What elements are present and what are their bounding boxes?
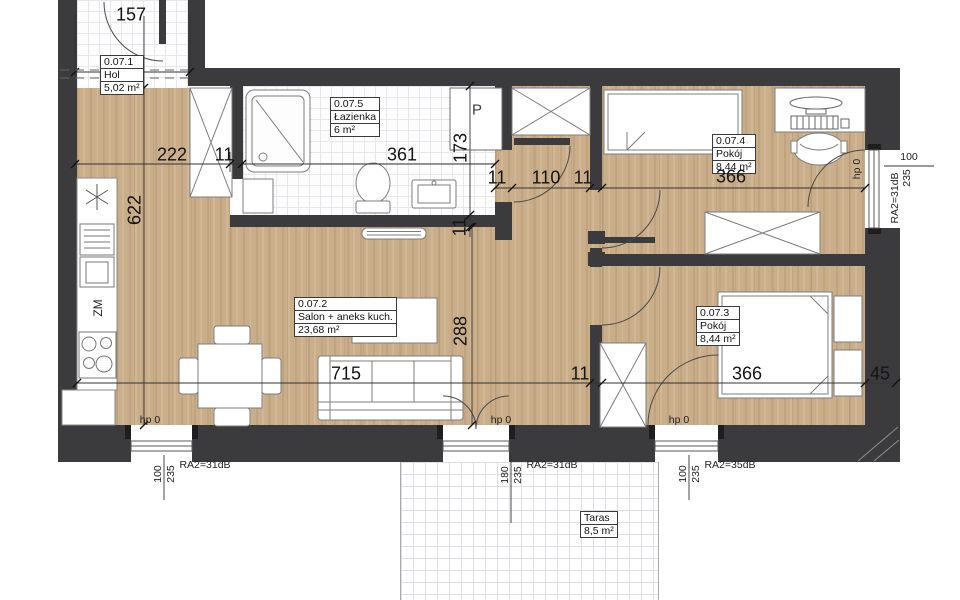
dim-11-bottom: 11 xyxy=(571,364,590,385)
door-bedroom4 xyxy=(602,190,660,248)
window-width-label: 100 xyxy=(677,465,689,483)
room-name: Salon + aneks kuch. xyxy=(295,310,396,323)
hob-icon xyxy=(79,332,116,378)
dim-salon-height: 288 xyxy=(451,316,472,346)
room-id: 0.07.4 xyxy=(713,135,755,147)
dim-bedroom3-width: 366 xyxy=(732,364,762,385)
floor-plan: 0.07.1 Hol 5,02 m² 0.07.5 Łazienka 6 m² … xyxy=(0,0,960,600)
window-height-label: 235 xyxy=(690,465,702,483)
window-acoustic-label: RA2=31dB xyxy=(179,459,230,471)
window-height-label: 235 xyxy=(901,169,913,187)
shower-icon xyxy=(246,90,310,172)
room-label-terrace: Taras 8,5 m² xyxy=(580,511,618,538)
sink-icon xyxy=(412,180,456,208)
dim-11-top: 11 xyxy=(215,145,234,166)
toilet-icon xyxy=(356,163,390,213)
door-bedroom3 xyxy=(602,267,660,325)
dim-11-mid-b: 11 xyxy=(574,168,593,189)
window-height-label: 235 xyxy=(165,465,177,483)
dim-kitchen-height: 622 xyxy=(125,195,146,225)
dim-11-mid-a: 11 xyxy=(488,168,507,189)
dim-salon-width: 715 xyxy=(331,364,361,385)
dining-table-icon xyxy=(179,326,281,426)
window-hp-label: hp 0 xyxy=(669,414,689,426)
room-name: Pokój xyxy=(697,319,739,332)
dim-bath-width: 361 xyxy=(387,145,417,166)
dim-222: 222 xyxy=(157,145,187,166)
window-hp-label: hp 0 xyxy=(851,159,863,179)
dim-bath-wall: 11 xyxy=(450,218,471,237)
room-label-salon: 0.07.2 Salon + aneks kuch. 23,68 m² xyxy=(294,297,397,337)
window-width-label: 100 xyxy=(900,151,918,163)
window-width-label: 180 xyxy=(499,466,511,484)
room-name: Taras xyxy=(581,512,617,524)
room-label-bedroom3: 0.07.3 Pokój 8,44 m² xyxy=(696,306,740,346)
room-area: 8,44 m² xyxy=(697,332,739,345)
room-name: Pokój xyxy=(713,147,755,160)
room-id: 0.07.2 xyxy=(295,298,396,310)
window-acoustic-label: RA2=31dB xyxy=(526,459,577,471)
room-label-bathroom: 0.07.5 Łazienka 6 m² xyxy=(330,97,380,137)
dim-bath-height: 173 xyxy=(451,133,472,163)
window-acoustic-label: RA2=31dB xyxy=(889,172,901,223)
corner-hatch xyxy=(858,427,899,461)
room-id: 0.07.5 xyxy=(331,98,379,110)
room-name: Hol xyxy=(101,68,143,81)
room-label-hol: 0.07.1 Hol 5,02 m² xyxy=(100,55,144,95)
shaft-label: P xyxy=(472,102,482,119)
room-id: 0.07.1 xyxy=(101,56,143,68)
room-area: 5,02 m² xyxy=(101,81,143,94)
dim-hall-width: 157 xyxy=(116,5,146,26)
oven-icon xyxy=(80,257,114,287)
washer-icon xyxy=(243,179,273,213)
window-width-label: 100 xyxy=(152,465,164,483)
dim-bedroom4-width: 366 xyxy=(716,167,746,188)
window-acoustic-label: RA2=35dB xyxy=(704,459,755,471)
room-area: 8,5 m² xyxy=(581,524,617,537)
corner-cabinet xyxy=(62,390,115,425)
office-chair-icon xyxy=(791,133,847,165)
fridge-icon xyxy=(80,224,114,255)
room-area: 23,68 m² xyxy=(295,323,396,336)
dim-corridor: 110 xyxy=(532,168,561,189)
dim-gap-45: 45 xyxy=(870,364,890,385)
dishwasher-label: ZM xyxy=(91,299,105,316)
nightstand-icon xyxy=(834,296,862,396)
room-id: 0.07.3 xyxy=(697,307,739,319)
room-name: Łazienka xyxy=(331,110,379,123)
plan-drawing xyxy=(0,0,960,600)
window-height-label: 235 xyxy=(512,466,524,484)
room-area: 6 m² xyxy=(331,123,379,136)
window-hp-label: hp 0 xyxy=(140,414,160,426)
window-hp-label: hp 0 xyxy=(491,414,511,426)
radiator-icon xyxy=(362,228,426,239)
